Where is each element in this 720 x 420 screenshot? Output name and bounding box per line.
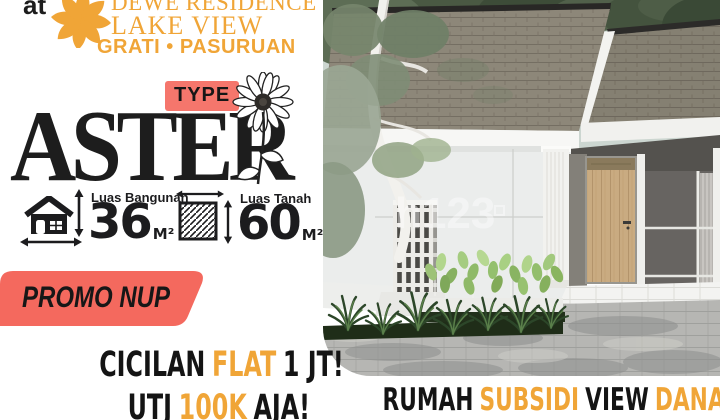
house-icon bbox=[23, 196, 75, 236]
land-area-number: 60 bbox=[237, 203, 300, 244]
headline-word-accent: 100K bbox=[179, 388, 247, 420]
headline-word: UTJ bbox=[128, 388, 172, 420]
vertical-double-arrow-icon bbox=[222, 200, 234, 244]
horizontal-double-arrow-icon bbox=[20, 236, 82, 248]
headline-word-accent: FLAT bbox=[212, 345, 276, 385]
headline-word: 1 JT! bbox=[283, 345, 344, 385]
house-render-image: h123 bbox=[323, 0, 720, 376]
hatched-square-land-icon bbox=[178, 201, 218, 241]
land-area-unit: M² bbox=[302, 229, 324, 242]
land-area-value: 60 M² bbox=[237, 203, 323, 244]
headline-word: CICILAN bbox=[99, 345, 205, 385]
headline-word: AJA! bbox=[253, 388, 310, 420]
building-area-number: 36 bbox=[88, 202, 151, 243]
flyer-root: h123 at DEWE RESIDENCE LAKE VIEW GRATI •… bbox=[0, 0, 720, 420]
house-render-scene: h123 bbox=[323, 0, 720, 376]
building-area-unit: M² bbox=[153, 228, 175, 241]
front-door bbox=[585, 156, 637, 284]
door-handle bbox=[623, 221, 631, 224]
tagline: RUMAHSUBSIDIVIEWDANAU bbox=[383, 382, 661, 418]
brand-prefix: at bbox=[23, 0, 46, 21]
brand-location: GRATI • PASURUAN bbox=[97, 36, 296, 59]
door-recess bbox=[569, 154, 587, 286]
aster-daisy-icon bbox=[221, 72, 307, 204]
building-area-value: 36 M² bbox=[88, 202, 174, 243]
horizontal-double-arrow-icon bbox=[176, 188, 224, 200]
vertical-double-arrow-icon bbox=[73, 189, 85, 237]
stock-watermark: h123 bbox=[395, 189, 504, 238]
headline: CICILANFLAT1 JT! UTJ100KAJA! bbox=[99, 344, 310, 420]
headline-line1: CICILANFLAT1 JT! bbox=[99, 344, 310, 387]
tagline-word: RUMAH bbox=[383, 382, 474, 418]
tagline-word-accent: SUBSIDI bbox=[480, 382, 580, 418]
tagline-word-accent: DANAU bbox=[655, 382, 720, 418]
headline-line2: UTJ100KAJA! bbox=[99, 387, 310, 420]
svg-text:h123: h123 bbox=[395, 189, 495, 238]
tagline-word: VIEW bbox=[585, 382, 649, 418]
promo-badge: PROMO NUP bbox=[22, 281, 170, 315]
